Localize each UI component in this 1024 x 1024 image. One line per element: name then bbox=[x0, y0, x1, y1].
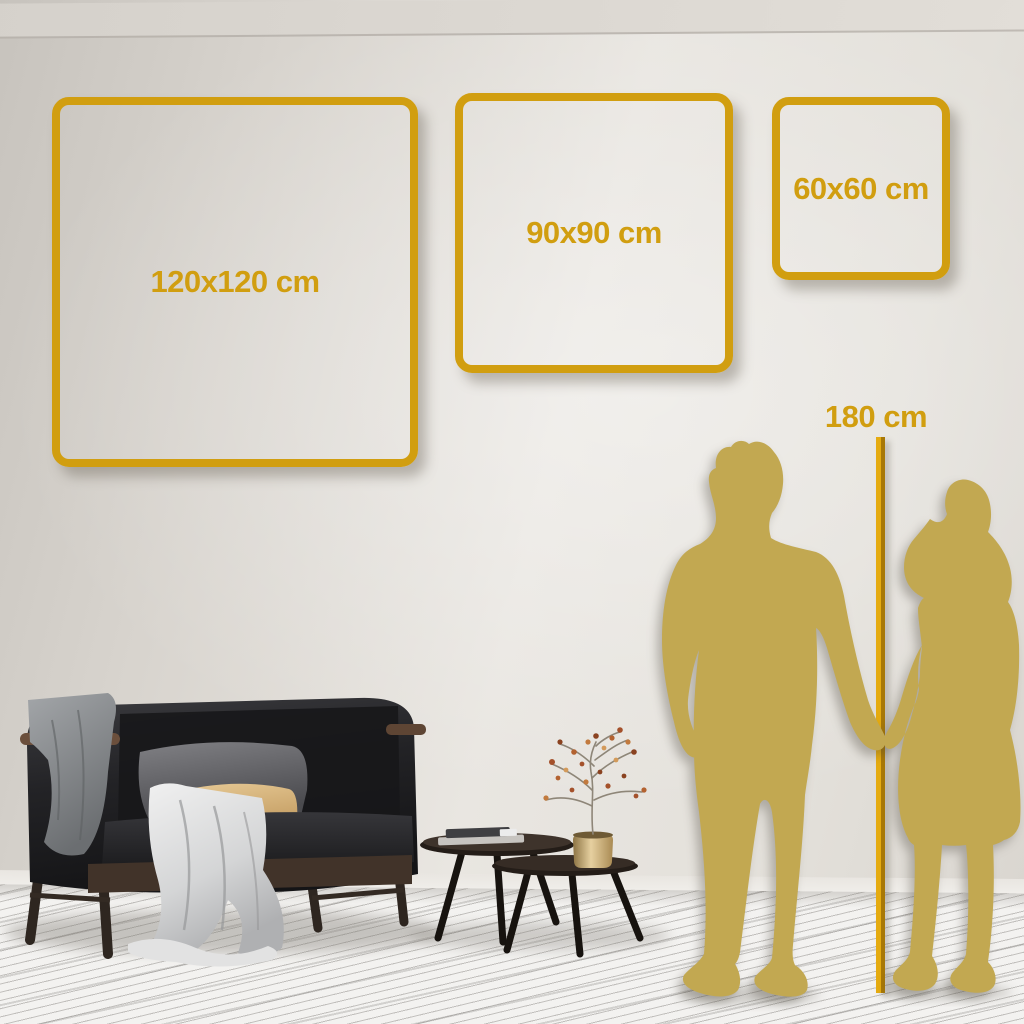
size-frame-60x60: 60x60 cm bbox=[772, 97, 950, 280]
height-label: 180 cm bbox=[796, 399, 956, 435]
size-label-90x90: 90x90 cm bbox=[526, 215, 662, 251]
size-frame-120x120: 120x120 cm bbox=[52, 97, 418, 467]
size-frame-90x90: 90x90 cm bbox=[455, 93, 733, 373]
size-label-120x120: 120x120 cm bbox=[150, 264, 319, 300]
height-ruler-line bbox=[876, 437, 885, 993]
plank-floor bbox=[0, 884, 1024, 1024]
size-guide-scene: 120x120 cm 90x90 cm 60x60 cm 180 cm bbox=[0, 0, 1024, 1024]
size-label-60x60: 60x60 cm bbox=[793, 171, 929, 207]
